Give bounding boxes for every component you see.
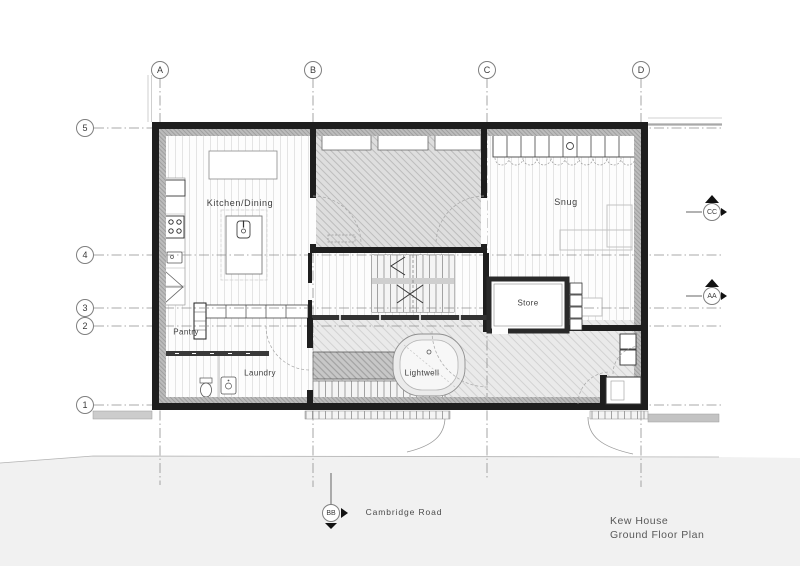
section-cc-arrow-up-icon <box>705 195 719 203</box>
grid-bubble-3: 3 <box>76 299 94 317</box>
section-cc-arrow-right-icon <box>721 208 727 216</box>
pavements <box>93 411 719 422</box>
title-block: Kew House Ground Floor Plan <box>610 515 704 542</box>
grid-bubble-1: 1 <box>76 396 94 414</box>
grid-bubble-5: 5 <box>76 119 94 137</box>
section-marker-aa: AA <box>703 287 721 305</box>
floor-plan-linework <box>0 0 800 566</box>
grid-bubble-c: C <box>478 61 496 79</box>
lightwell-shape <box>393 334 465 396</box>
room-label-lightwell: Lightwell <box>405 369 440 378</box>
road-label: Cambridge Road <box>366 507 443 517</box>
room-label-snug: Snug <box>554 197 577 207</box>
section-aa-arrow-up-icon <box>705 279 719 287</box>
room-label-pantry: Pantry <box>173 328 199 337</box>
room-label-kitchen-dining: Kitchen/Dining <box>207 198 273 208</box>
section-bb-arrow-down-icon <box>325 523 337 529</box>
section-marker-cc: CC <box>703 203 721 221</box>
grid-bubble-d: D <box>632 61 650 79</box>
room-label-store: Store <box>517 299 538 308</box>
project-title: Kew House <box>610 515 704 529</box>
room-label-laundry: Laundry <box>244 369 276 378</box>
road-area <box>0 417 800 566</box>
drawing-title: Ground Floor Plan <box>610 529 704 543</box>
section-aa-arrow-right-icon <box>721 292 727 300</box>
grid-bubble-2: 2 <box>76 317 94 335</box>
section-bb-arrow-right-icon <box>341 508 348 518</box>
grid-bubble-b: B <box>304 61 322 79</box>
grid-bubble-4: 4 <box>76 246 94 264</box>
site-reference-lines <box>148 75 722 125</box>
section-marker-bb: BB <box>322 504 340 522</box>
drawing-sheet: A B C D 5 4 3 2 1 CC AA BB Kitchen/Dinin… <box>0 0 800 566</box>
staircase <box>372 255 454 312</box>
grid-bubble-a: A <box>151 61 169 79</box>
